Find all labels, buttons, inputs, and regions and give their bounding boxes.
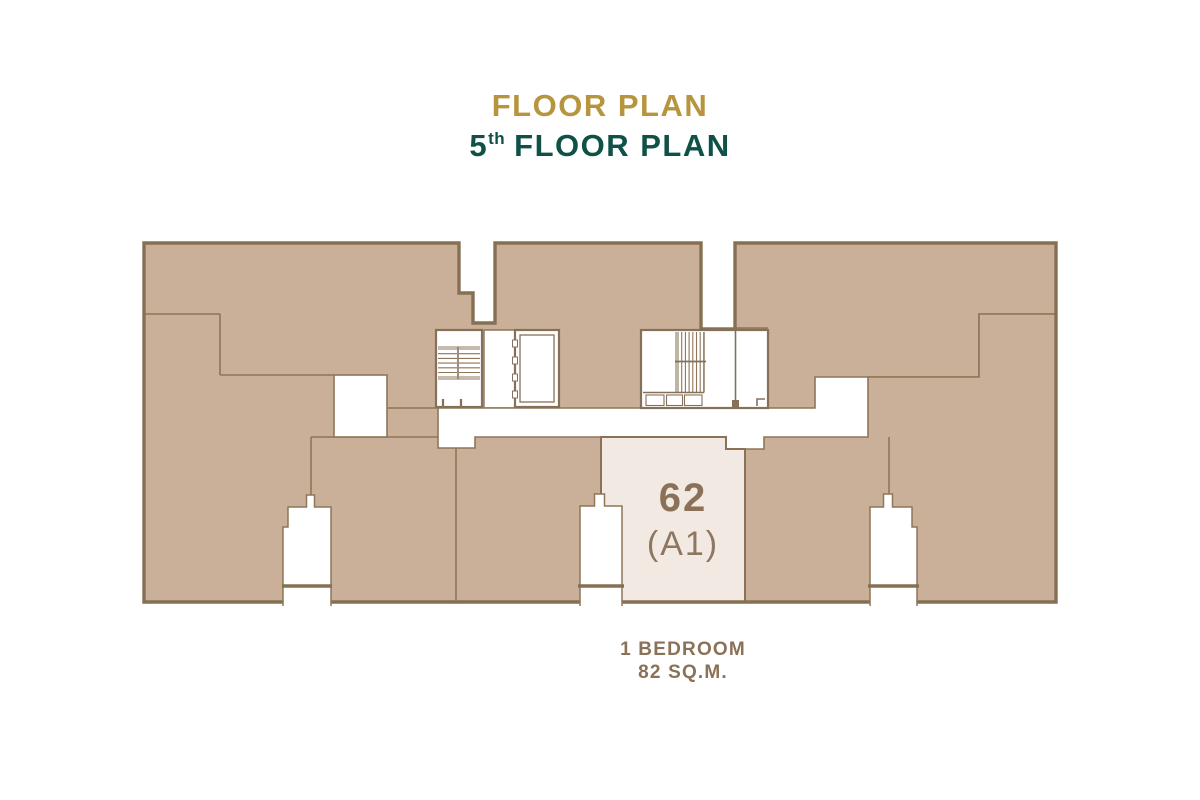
unit-number-label: 62 <box>573 478 793 518</box>
unit-area-label: 82 SQ.M. <box>573 663 793 682</box>
elevator-shaft-icon <box>513 330 560 407</box>
right-entry-notch <box>870 494 917 606</box>
corridor-pocket <box>334 375 387 437</box>
unit-bedrooms-label: 1 BEDROOM <box>573 640 793 659</box>
left-staircase-icon <box>436 330 482 407</box>
left-entry-notch <box>283 495 331 606</box>
floor-plan-page: FLOOR PLAN 5thFLOOR PLAN <box>0 0 1200 800</box>
core-lobby-gap <box>484 330 515 407</box>
unit-type-label: (A1) <box>573 527 793 561</box>
right-staircase-core-icon <box>641 330 768 408</box>
